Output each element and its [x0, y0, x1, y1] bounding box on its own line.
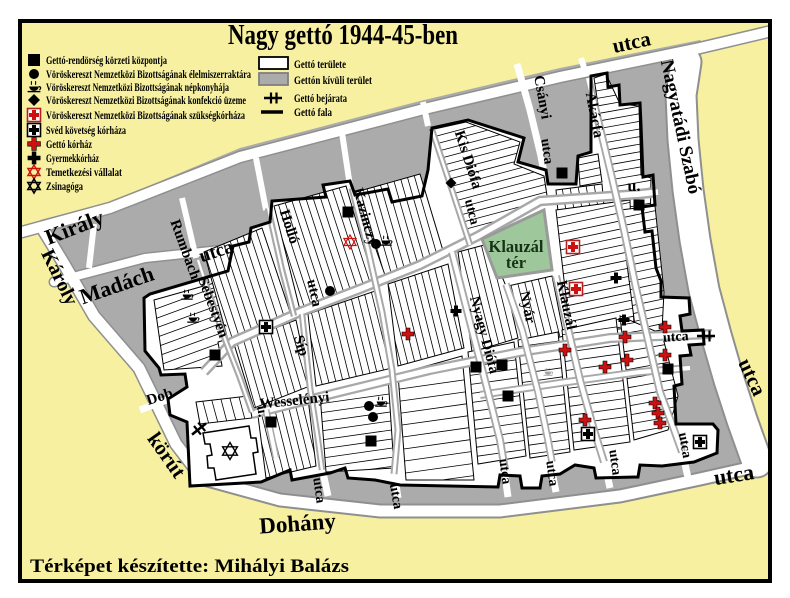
svg-text:Svéd követség kórháza: Svéd követség kórháza: [46, 125, 126, 137]
svg-text:Temetkezési vállalat: Temetkezési vállalat: [46, 167, 122, 179]
svg-text:Gettó kórház: Gettó kórház: [46, 139, 92, 151]
svg-text:Vöröskereszt Nemzetközi Bizott: Vöröskereszt Nemzetközi Bizottságának sz…: [46, 110, 245, 122]
svg-text:tér: tér: [506, 253, 526, 272]
svg-text:Térképet készítette: Mihályi B: Térképet készítette: Mihályi Balázs: [30, 556, 349, 577]
svg-text:Gettón kívüli terület: Gettón kívüli terület: [294, 75, 372, 87]
svg-text:Gettó területe: Gettó területe: [294, 59, 346, 71]
svg-text:Vöröskereszt Nemzetközi Bizott: Vöröskereszt Nemzetközi Bizottságának ko…: [46, 95, 246, 107]
svg-text:Gettó fala: Gettó fala: [294, 107, 332, 119]
svg-text:Zsinagóga: Zsinagóga: [46, 181, 83, 193]
svg-text:Gyermekkórház: Gyermekkórház: [46, 153, 99, 165]
svg-text:Vöröskereszt Nemzetközi Bizott: Vöröskereszt Nemzetközi Bizottságának né…: [46, 82, 229, 94]
svg-text:Gettó bejárata: Gettó bejárata: [294, 93, 347, 105]
svg-text:Vöröskereszt Nemzetközi Bizott: Vöröskereszt Nemzetközi Bizottságának él…: [46, 69, 251, 81]
svg-text:u.: u.: [628, 178, 641, 195]
svg-text:Gettó-rendörség körzeti közpon: Gettó-rendörség körzeti központja: [46, 55, 167, 67]
svg-text:Nagy gettó 1944-45-ben: Nagy gettó 1944-45-ben: [228, 20, 458, 51]
svg-text:utca: utca: [662, 329, 689, 346]
